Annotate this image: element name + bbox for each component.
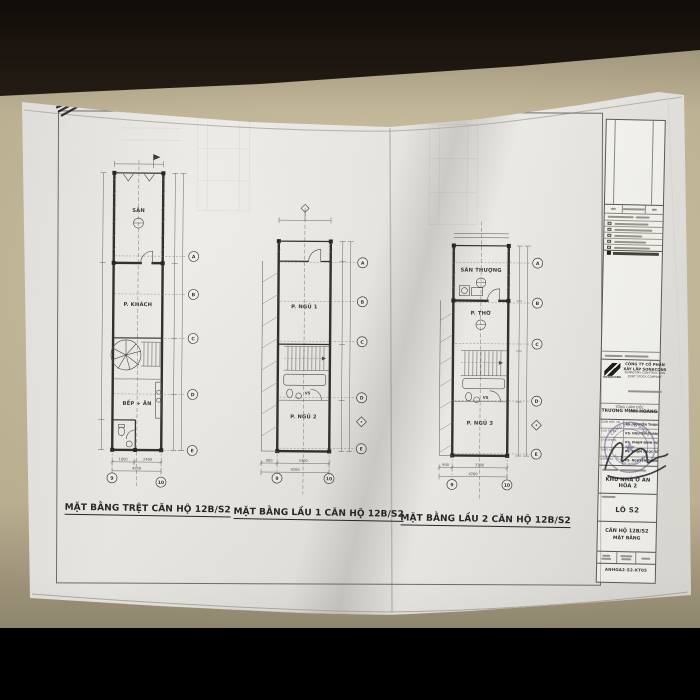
- sonacons-logo-mark: [604, 363, 620, 376]
- svg-text:B: B: [536, 301, 540, 307]
- dim-segment: 3300: [475, 463, 485, 467]
- svg-text:E: E: [535, 452, 538, 458]
- svg-text:E: E: [360, 447, 363, 453]
- floor-plan-ground: SÂN P. KHÁCH BẾP + ĂN 1: [77, 150, 250, 496]
- photo-scene: SÂN P. KHÁCH BẾP + ĂN 1: [0, 0, 700, 700]
- dim-total: 4200: [468, 472, 478, 476]
- room-label-bed1: P. NGỦ 1: [291, 302, 318, 310]
- dim-segment: 3300: [299, 459, 309, 463]
- dim-segment: 900: [266, 459, 274, 463]
- director-block: TỔNG GIÁM ĐỐC TRƯƠNG MINH HOÀNG: [600, 403, 658, 420]
- svg-text:D: D: [535, 399, 539, 405]
- stamp-area: CÔNG TY CỔ PHẦN XÂY LẮP SONACONS: [602, 255, 662, 352]
- drawing-title-row: CĂN HỘ 12B/S2 MẶT BẰNG: [597, 521, 656, 552]
- floor-plan-level1: P. NGỦ 1 VS P. NGỦ 2 900 3300: [239, 204, 411, 505]
- svg-text:9: 9: [450, 482, 453, 488]
- svg-text:9: 9: [275, 476, 278, 482]
- svg-text:A: A: [536, 261, 540, 267]
- svg-text:9: 9: [110, 476, 113, 482]
- scale-date-cells: [597, 551, 655, 564]
- handwritten-signature: [599, 431, 672, 489]
- dim-segment: 1800: [119, 457, 129, 461]
- company-name-en2: JOINT STOCK COMPANY: [623, 375, 666, 380]
- drawing-number-row: ANHOA2-S2-KT05: [597, 563, 655, 576]
- svg-text:10: 10: [158, 480, 164, 486]
- svg-text:10: 10: [326, 476, 332, 482]
- dim-segment: 2400: [143, 458, 153, 462]
- room-label-worship: P. THỜ: [471, 310, 492, 317]
- dim-total: 4200: [132, 466, 142, 470]
- svg-text:B: B: [192, 292, 196, 298]
- revision-table: [605, 120, 665, 205]
- room-label-terrace: SÂN THƯỢNG: [460, 267, 501, 274]
- contract-number-row: [602, 351, 660, 360]
- dossier-row: [605, 213, 663, 221]
- plan-title-level1: MẶT BẰNG LẦU 1 CĂN HỘ 12B/S2: [231, 499, 407, 522]
- svg-text:D: D: [360, 396, 364, 402]
- svg-text:B: B: [361, 300, 365, 306]
- svg-text:A: A: [361, 261, 365, 267]
- room-label-kitchen: BẾP + ĂN: [122, 399, 151, 407]
- floor-plan-level2: SÂN THƯỢNG P. THỜ VS P. NGỦ 3: [414, 215, 586, 516]
- room-label-bed3: P. NGỦ 3: [467, 419, 494, 427]
- lot-row: LÔ S2: [598, 499, 656, 522]
- room-label-bed2: P. NGỦ 2: [290, 412, 317, 420]
- room-label-vs: VS: [483, 395, 489, 400]
- svg-text:A: A: [192, 254, 196, 260]
- dim-segment: 900: [442, 463, 450, 467]
- grid-bubbles-rows: A B C D E: [187, 251, 199, 455]
- svg-text:10: 10: [504, 483, 510, 489]
- svg-text:E: E: [191, 448, 194, 454]
- dark-background-bottom: hadatvn .com.vn KÊNH THÔNG TIN MUA BÁN N…: [0, 628, 700, 700]
- room-label-yard: SÂN: [132, 207, 145, 214]
- title-block: CÔNG TY CỔ PHẦN XÂY LẮP SONACONS: [596, 119, 666, 584]
- svg-text:D: D: [191, 392, 195, 398]
- plan-title-ground: MẶT BẰNG TRỆT CĂN HỘ 12B/S2: [57, 495, 239, 518]
- room-label-vs: VS: [305, 390, 311, 395]
- dim-total: 4200: [290, 468, 300, 472]
- plan-title-level2: MẶT BẰNG LẦU 2 CĂN HỘ 12B/S2: [397, 505, 575, 528]
- room-label-living: P. KHÁCH: [123, 301, 152, 308]
